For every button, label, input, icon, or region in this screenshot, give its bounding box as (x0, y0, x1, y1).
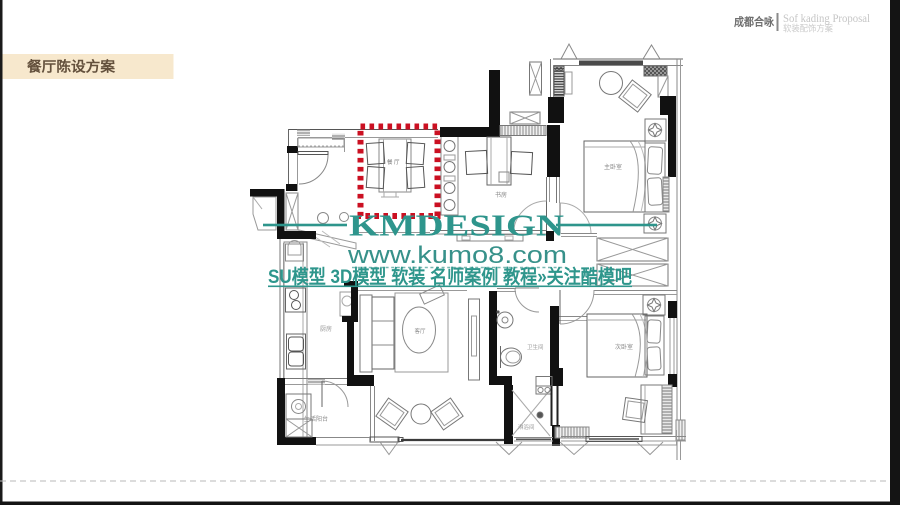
svg-text:餐厅陈设方案: 餐厅陈设方案 (26, 59, 116, 75)
svg-text:客厅: 客厅 (415, 327, 427, 335)
svg-text:www.kumo8.com: www.kumo8.com (347, 242, 567, 269)
svg-text:书房: 书房 (495, 191, 507, 199)
svg-text:卫生间: 卫生间 (527, 343, 544, 351)
svg-text:成都合咏: 成都合咏 (734, 15, 775, 29)
svg-text:KMDESIGN: KMDESIGN (349, 208, 564, 243)
svg-text:厨房: 厨房 (320, 325, 332, 333)
svg-text:主卧室: 主卧室 (604, 163, 622, 171)
svg-text:软装配饰方案: 软装配饰方案 (783, 23, 833, 34)
svg-text:淋浴间: 淋浴间 (518, 423, 535, 431)
svg-text:生活阳台: 生活阳台 (304, 415, 328, 423)
svg-text:餐 厅: 餐 厅 (387, 158, 400, 166)
svg-text:SU模型 3D模型 软装 名师案例 教程»关注酷模吧: SU模型 3D模型 软装 名师案例 教程»关注酷模吧 (268, 265, 632, 288)
svg-text:次卧室: 次卧室 (615, 343, 633, 351)
